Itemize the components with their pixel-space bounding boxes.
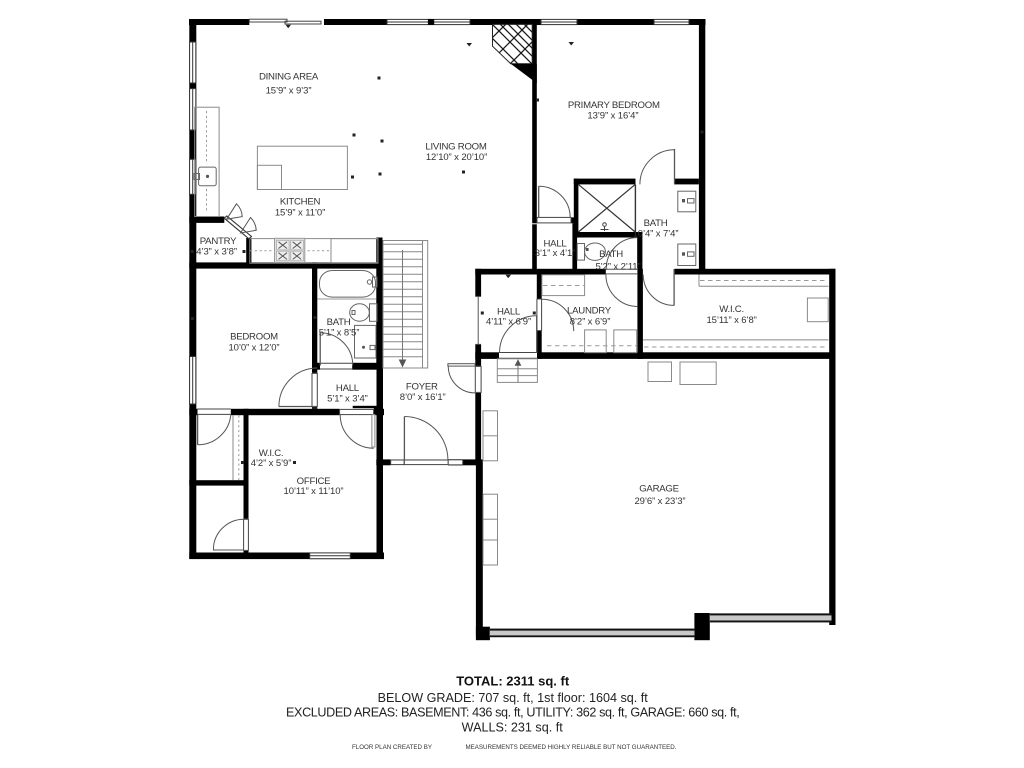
svg-text:BATH: BATH [599, 249, 623, 260]
svg-text:FLOOR PLAN CREATED BY: FLOOR PLAN CREATED BY [352, 744, 432, 751]
svg-text:12’10” x 20’10”: 12’10” x 20’10” [426, 152, 487, 163]
svg-text:WALLS: 231 sq. ft: WALLS: 231 sq. ft [462, 720, 564, 734]
svg-text:4’3” x 3’8”: 4’3” x 3’8” [196, 247, 237, 258]
svg-text:5’1” x 3’4”: 5’1” x 3’4” [327, 394, 368, 405]
svg-text:DINING AREA: DINING AREA [259, 72, 319, 83]
svg-text:15’11” x 6’8”: 15’11” x 6’8” [706, 315, 756, 326]
svg-text:BATH: BATH [644, 218, 668, 229]
svg-text:MEASUREMENTS DEEMED HIGHLY REL: MEASUREMENTS DEEMED HIGHLY RELIABLE BUT … [466, 744, 677, 751]
svg-text:15’9” x 11’0”: 15’9” x 11’0” [275, 208, 325, 219]
svg-text:FOYER: FOYER [406, 382, 438, 393]
svg-text:4’11” x 6’9”: 4’11” x 6’9” [486, 317, 531, 328]
svg-text:KITCHEN: KITCHEN [280, 197, 321, 208]
svg-text:8’2” x 6’9”: 8’2” x 6’9” [570, 317, 611, 328]
svg-text:W.I.C.: W.I.C. [719, 304, 744, 315]
svg-text:HALL: HALL [336, 383, 360, 394]
svg-text:15’9” x 9’3”: 15’9” x 9’3” [266, 86, 312, 97]
svg-text:10’0” x 12’0”: 10’0” x 12’0” [229, 343, 280, 354]
svg-text:TOTAL: 2311 sq. ft: TOTAL: 2311 sq. ft [456, 674, 570, 689]
svg-text:LAUNDRY: LAUNDRY [567, 306, 612, 317]
svg-text:5’2” x 2’11”: 5’2” x 2’11” [595, 261, 640, 272]
svg-text:GARAGE: GARAGE [639, 484, 679, 495]
svg-text:4’2” x 5’9”: 4’2” x 5’9” [251, 458, 292, 469]
svg-text:BELOW GRADE: 707 sq. ft, 1st f: BELOW GRADE: 707 sq. ft, 1st floor: 1604… [378, 691, 649, 705]
svg-text:EXCLUDED AREAS: BASEMENT: 436: EXCLUDED AREAS: BASEMENT: 436 sq. ft, UT… [286, 706, 739, 720]
svg-text:5’1” x 8’5”: 5’1” x 8’5” [319, 327, 360, 338]
svg-text:PRIMARY BEDROOM: PRIMARY BEDROOM [568, 100, 660, 111]
svg-text:8’0” x 16’1”: 8’0” x 16’1” [400, 392, 446, 403]
svg-text:PANTRY: PANTRY [200, 236, 237, 247]
svg-text:29’6” x 23’3”: 29’6” x 23’3” [635, 496, 686, 507]
svg-text:13’9” x 16’4”: 13’9” x 16’4” [587, 111, 638, 122]
svg-text:BEDROOM: BEDROOM [230, 332, 278, 343]
svg-text:10’11” x 11’10”: 10’11” x 11’10” [284, 486, 344, 497]
svg-text:10’4” x 7’4”: 10’4” x 7’4” [633, 229, 679, 240]
svg-text:LIVING ROOM: LIVING ROOM [425, 141, 486, 152]
svg-text:3’1” x 4’1”: 3’1” x 4’1” [535, 248, 576, 259]
